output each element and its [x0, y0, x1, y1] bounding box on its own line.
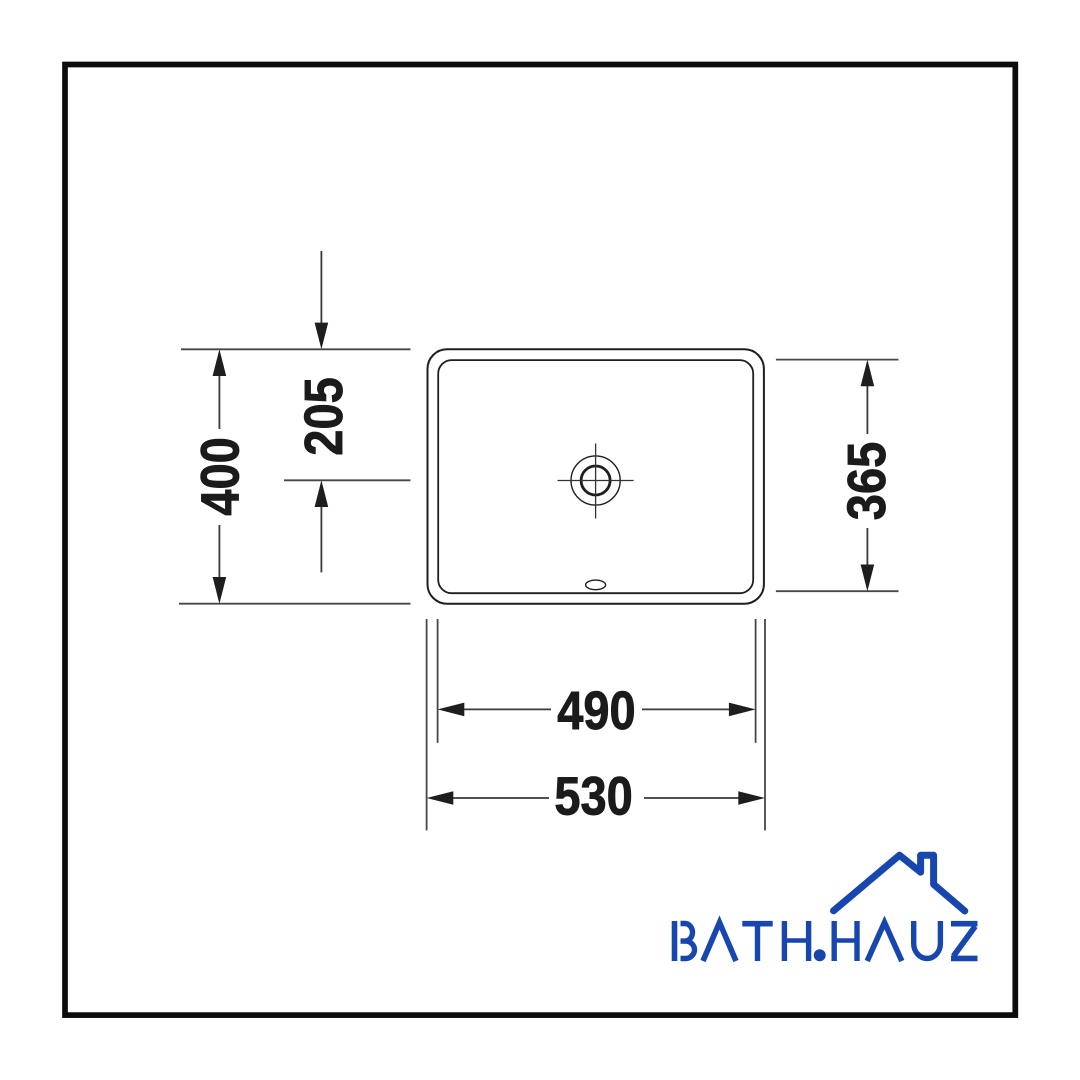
svg-text:530: 530 [554, 766, 632, 827]
svg-text:205: 205 [293, 377, 354, 455]
svg-text:400: 400 [190, 437, 251, 515]
svg-text:365: 365 [836, 442, 897, 520]
svg-text:490: 490 [557, 680, 635, 741]
